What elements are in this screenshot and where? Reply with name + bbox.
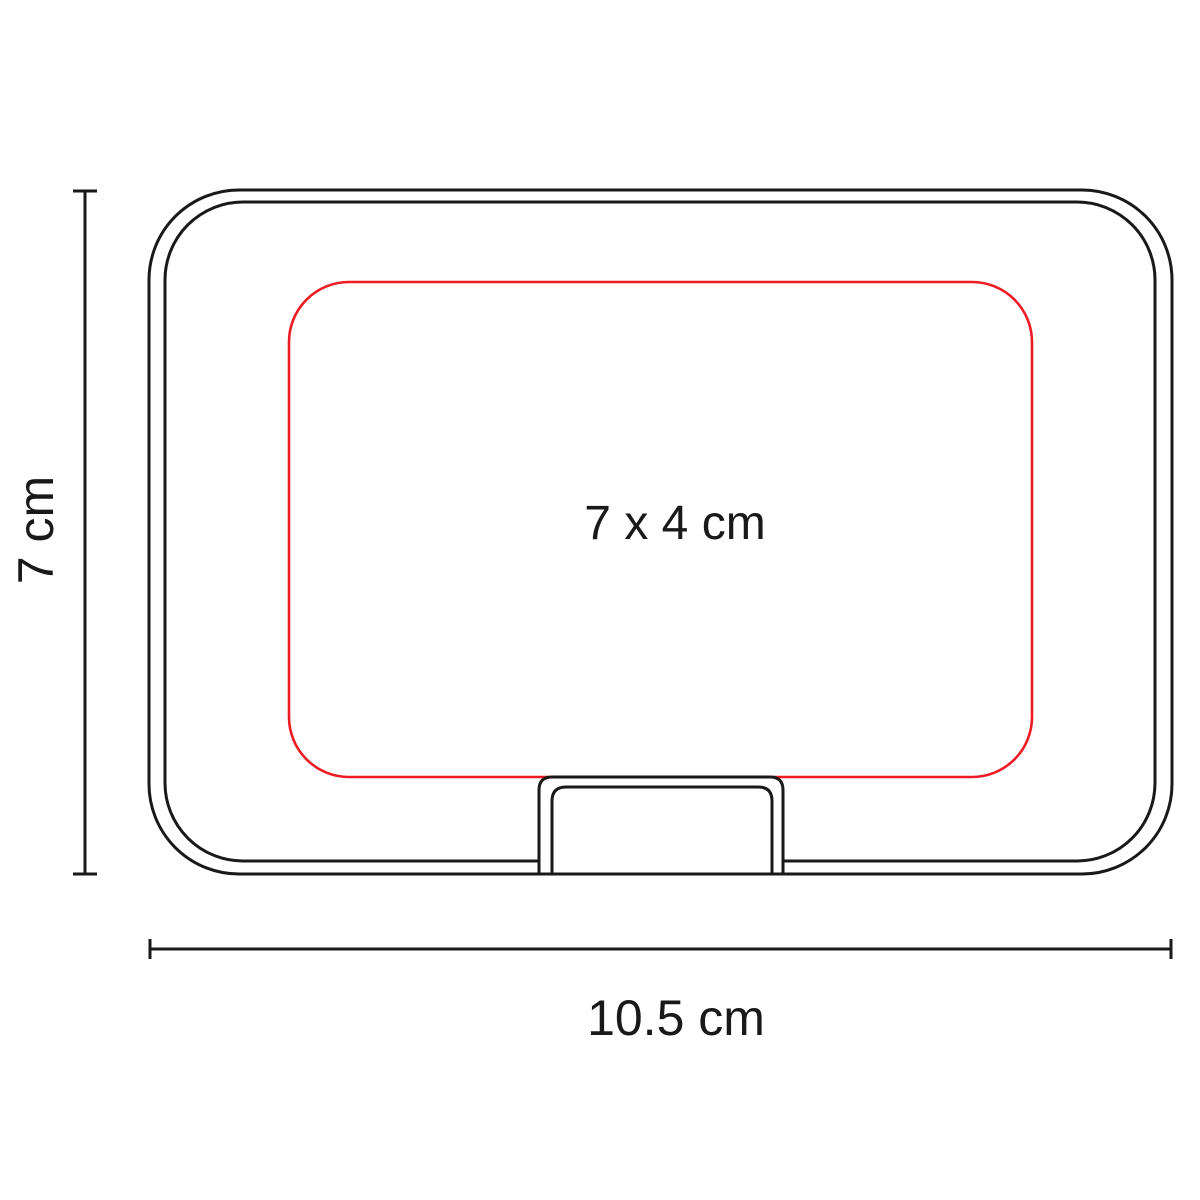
imprint-area-label: 7 x 4 cm	[584, 497, 765, 550]
labels-group: 7 x 4 cm 10.5 cm 7 cm	[8, 476, 766, 1046]
width-dimension-label: 10.5 cm	[587, 990, 765, 1046]
diagram-svg: 7 x 4 cm 10.5 cm 7 cm	[0, 0, 1200, 1200]
height-dimension-label: 7 cm	[8, 476, 64, 584]
dimension-diagram: 7 x 4 cm 10.5 cm 7 cm	[0, 0, 1200, 1200]
latch-outer-outline	[539, 777, 783, 874]
product-outline-group	[73, 190, 1172, 959]
